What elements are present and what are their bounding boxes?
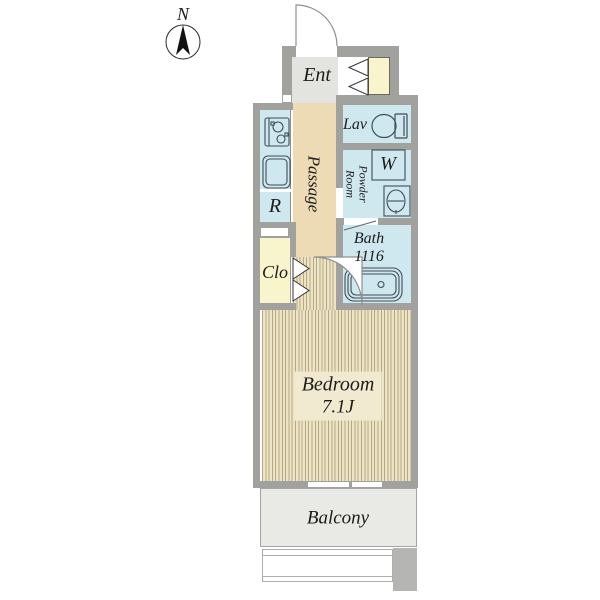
- entrance-label: Ent: [303, 64, 331, 86]
- passage-label: Passage: [304, 156, 323, 213]
- powder-room-label: Powder Room: [343, 165, 370, 202]
- north-label: N: [177, 4, 189, 24]
- lavatory-label: Lav: [343, 116, 367, 134]
- refrigerator-label: R: [269, 195, 281, 217]
- sink-icon: [263, 156, 290, 188]
- bath-size: 1116: [354, 248, 384, 265]
- north-arrow-icon: [166, 25, 200, 59]
- entrance-door-arc: [296, 5, 337, 46]
- powder-room-line2: Room: [343, 170, 357, 198]
- bath-door-line: [344, 221, 376, 230]
- shoe-cabinet-door-icon: [349, 59, 368, 95]
- balcony-label: Balcony: [307, 507, 369, 528]
- bath-name: Bath: [354, 230, 384, 247]
- washing-machine-label: W: [380, 153, 396, 174]
- stove-icon: [265, 118, 289, 146]
- closet-folding-door-icon: [293, 258, 309, 301]
- bath-label: Bath 1116: [354, 230, 384, 266]
- toilet-icon: [372, 114, 407, 138]
- powder-room-line1: Powder: [356, 165, 370, 202]
- fixtures-overlay: [0, 0, 600, 600]
- floor-plan: N Ent Lav Passage Powder Room W R Bath 1…: [0, 0, 600, 600]
- bedroom-name: Bedroom: [302, 374, 375, 396]
- washbasin-icon: [384, 186, 410, 216]
- bedroom-label: Bedroom 7.1J: [295, 372, 382, 421]
- closet-label: Clo: [262, 262, 288, 282]
- bedroom-size: 7.1J: [322, 397, 354, 418]
